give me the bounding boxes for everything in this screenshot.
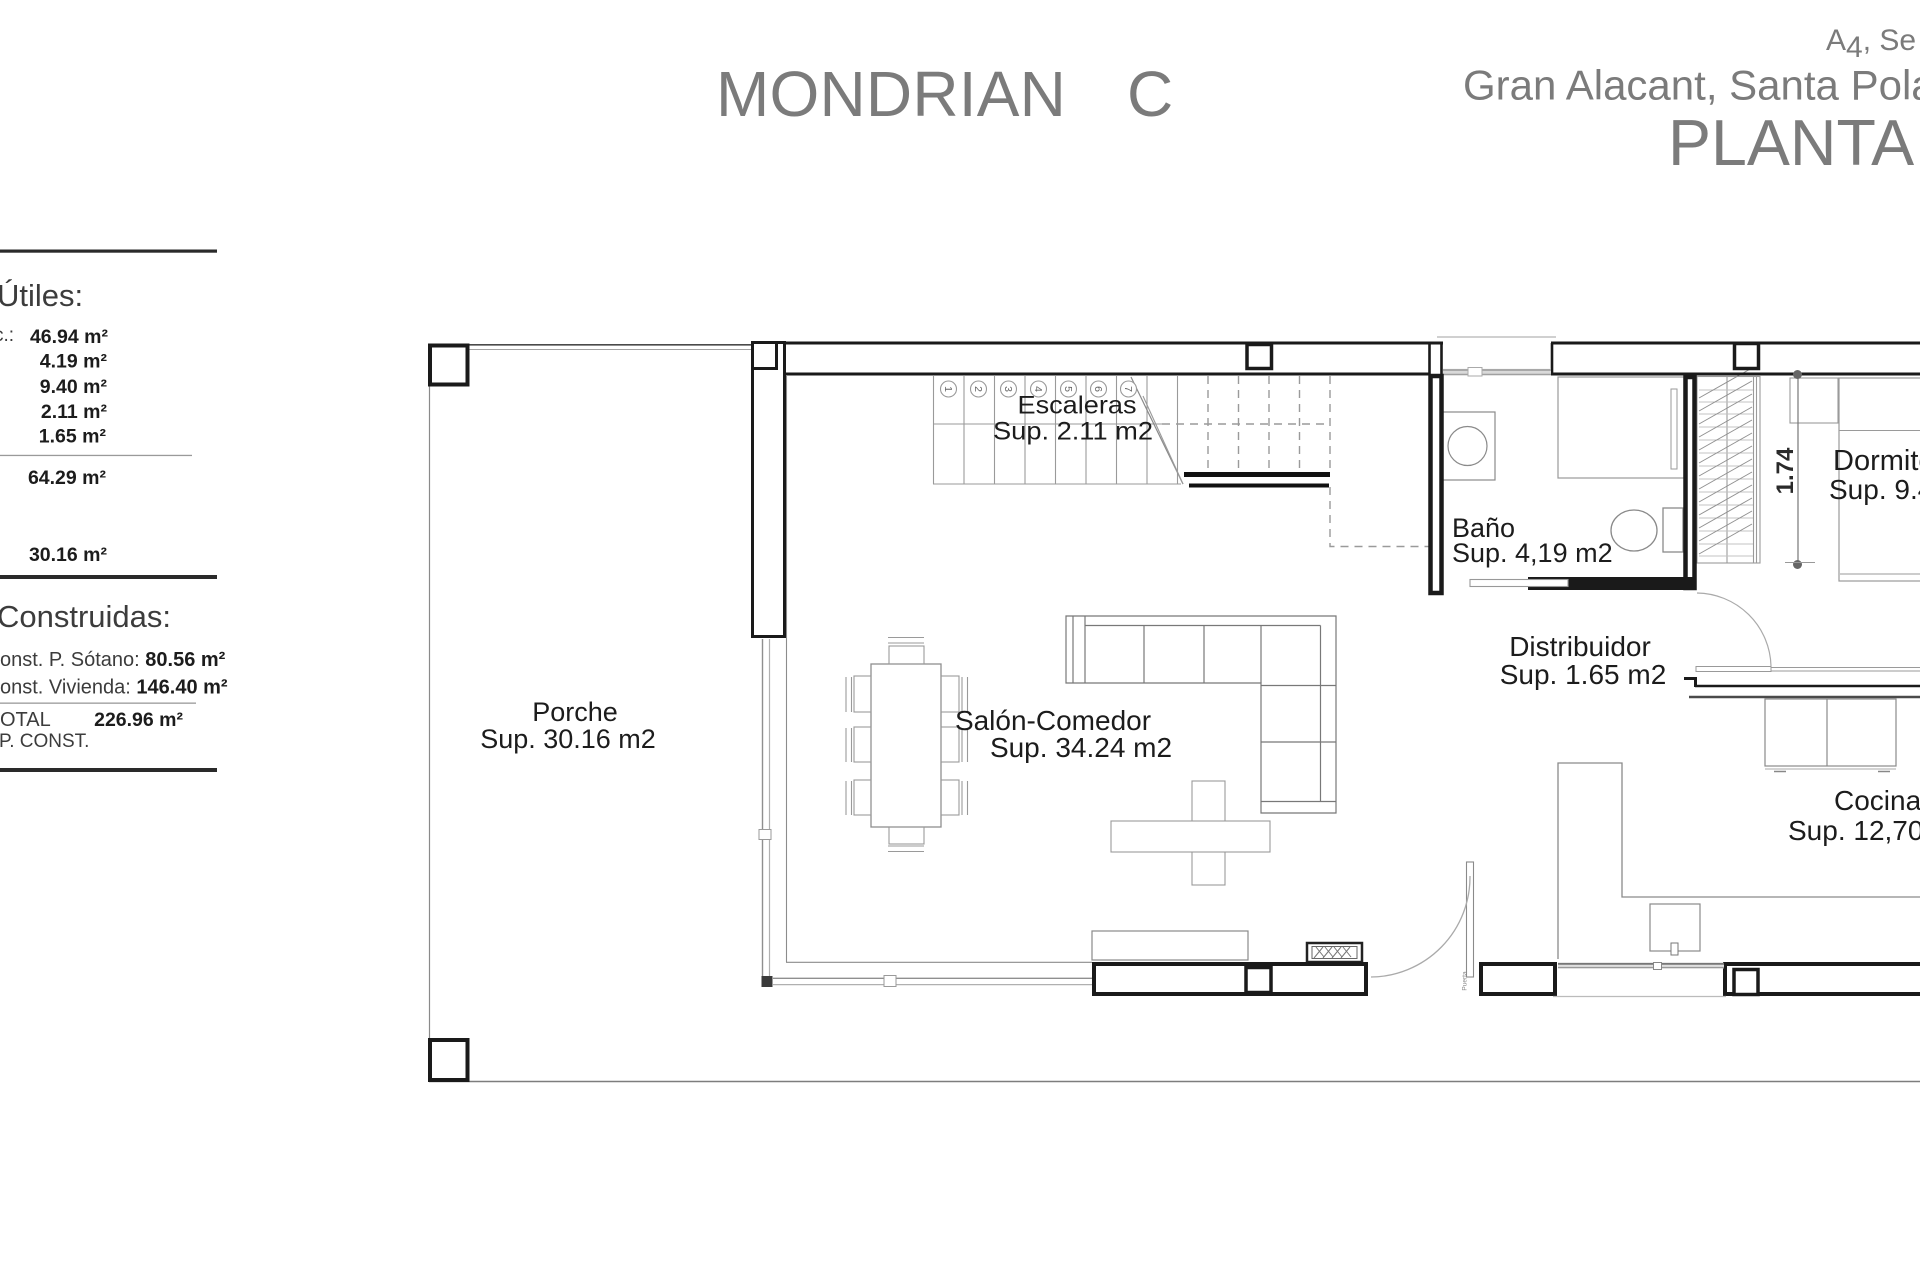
svg-text:46.94 m²: 46.94 m² [30, 326, 109, 348]
svg-text:PLANTA BAJA: PLANTA BAJA [1668, 107, 1920, 179]
svg-text:Sup. 2.11 m2: Sup. 2.11 m2 [993, 418, 1153, 446]
svg-text:onst. P. Sótano: 80.56 m²: onst. P. Sótano: 80.56 m² [0, 649, 226, 671]
svg-text:4.19 m²: 4.19 m² [40, 351, 108, 373]
svg-text:Distribuidor: Distribuidor [1509, 631, 1651, 662]
svg-text:Gran Alacant, Santa Pola (Ali: Gran Alacant, Santa Pola (Ali [1463, 62, 1920, 109]
svg-text:OTAL: OTAL [0, 709, 51, 731]
svg-text:3: 3 [1002, 386, 1014, 392]
svg-text:Sup. 12,70 m2: Sup. 12,70 m2 [1788, 815, 1920, 846]
svg-text:Sup. 34.24 m2: Sup. 34.24 m2 [990, 732, 1172, 763]
svg-text:Escaleras: Escaleras [1018, 392, 1137, 420]
svg-text:9.40 m²: 9.40 m² [40, 376, 108, 398]
svg-text:Sup. 4,19 m2: Sup. 4,19 m2 [1452, 538, 1613, 568]
svg-text:226.96 m²: 226.96 m² [94, 709, 183, 731]
svg-text:1.74: 1.74 [1772, 447, 1799, 494]
svg-text:c.:: c.: [0, 325, 14, 346]
svg-text:Puerta: Puerta [1462, 971, 1469, 991]
svg-text:onst. Vivienda: 146.40 m²: onst. Vivienda: 146.40 m² [0, 677, 228, 699]
svg-text:Construidas:: Construidas: [0, 599, 171, 634]
svg-text:2.11 m²: 2.11 m² [41, 401, 108, 423]
svg-text:2: 2 [972, 386, 984, 392]
svg-text:Útiles:: Útiles: [0, 278, 83, 313]
svg-text:C: C [1127, 58, 1173, 130]
svg-text:1: 1 [942, 386, 954, 392]
svg-text:64.29 m²: 64.29 m² [28, 467, 107, 489]
svg-text:Dormitorio: Dormitorio [1833, 445, 1920, 477]
svg-text:P. CONST.: P. CONST. [0, 731, 89, 752]
svg-text:Sup. 30.16 m2: Sup. 30.16 m2 [480, 724, 656, 754]
svg-text:Sup. 1.65 m2: Sup. 1.65 m2 [1500, 659, 1667, 690]
svg-text:1.65 m²: 1.65 m² [39, 426, 107, 448]
svg-text:Porche: Porche [532, 697, 618, 727]
svg-text:Sup. 9.40 m2: Sup. 9.40 m2 [1829, 474, 1920, 505]
svg-text:MONDRIAN: MONDRIAN [716, 58, 1066, 130]
svg-text:Cocina: Cocina [1834, 785, 1920, 816]
svg-text:30.16 m²: 30.16 m² [29, 544, 108, 566]
